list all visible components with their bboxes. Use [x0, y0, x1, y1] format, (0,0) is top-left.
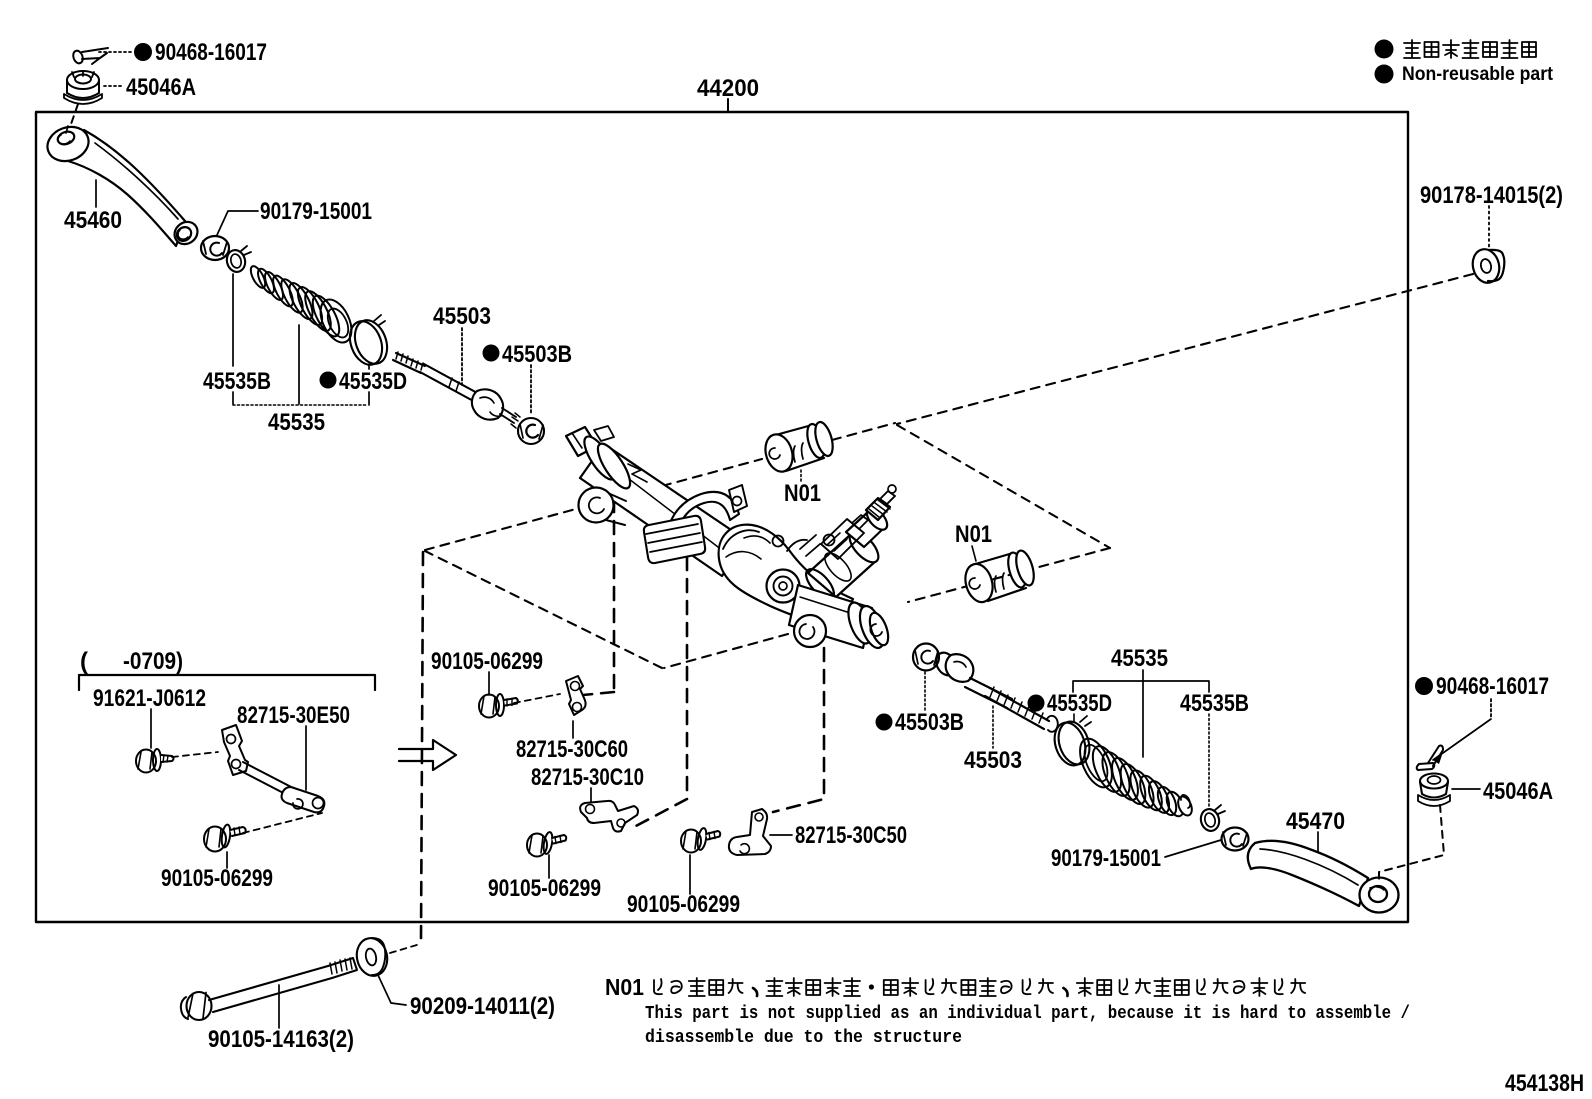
svg-text:90105-06299: 90105-06299 [488, 875, 601, 902]
svg-text:-0709): -0709) [123, 648, 183, 675]
svg-text:90178-14015(2): 90178-14015(2) [1420, 182, 1563, 209]
svg-text:90105-06299: 90105-06299 [431, 648, 543, 675]
svg-text:82715-30C10: 82715-30C10 [531, 764, 644, 791]
svg-text:45503: 45503 [964, 747, 1022, 774]
svg-text:90105-06299: 90105-06299 [161, 865, 273, 892]
svg-text:N01: N01 [605, 974, 644, 1000]
svg-text:45503B: 45503B [502, 341, 572, 368]
svg-text:45046A: 45046A [126, 74, 196, 101]
svg-text:90105-14163(2): 90105-14163(2) [208, 1026, 354, 1053]
svg-text:90468-16017: 90468-16017 [1436, 673, 1549, 700]
svg-text:45503B: 45503B [895, 709, 964, 736]
svg-text:82715-30E50: 82715-30E50 [237, 702, 350, 729]
svg-text:(: ( [80, 648, 88, 675]
svg-text:45535: 45535 [1111, 645, 1168, 672]
svg-text:N01: N01 [784, 480, 821, 507]
svg-text:90468-16017: 90468-16017 [155, 39, 267, 66]
svg-text:45535B: 45535B [203, 368, 271, 395]
svg-text:45535D: 45535D [339, 368, 407, 395]
svg-text:82715-30C50: 82715-30C50 [795, 822, 907, 849]
svg-text:91621-J0612: 91621-J0612 [93, 685, 206, 712]
svg-text:disassemble due to the structu: disassemble due to the structure [645, 1028, 962, 1048]
svg-text:45470: 45470 [1286, 808, 1345, 835]
svg-text:454138H: 454138H [1505, 1070, 1584, 1097]
svg-text:45535D: 45535D [1047, 690, 1112, 717]
svg-text:N01: N01 [955, 521, 992, 548]
svg-text:45535B: 45535B [1180, 690, 1249, 717]
svg-text:90179-15001: 90179-15001 [1051, 845, 1161, 872]
svg-text:82715-30C60: 82715-30C60 [516, 736, 628, 763]
svg-text:45503: 45503 [433, 303, 491, 330]
svg-text:Non-reusable part: Non-reusable part [1402, 64, 1554, 85]
svg-text:90105-06299: 90105-06299 [627, 891, 740, 918]
svg-text:44200: 44200 [697, 75, 759, 102]
svg-text:45460: 45460 [64, 207, 122, 234]
svg-text:This part is not supplied as a: This part is not supplied as an individu… [645, 1004, 1410, 1024]
svg-text:90179-15001: 90179-15001 [260, 198, 372, 225]
svg-text:90209-14011(2): 90209-14011(2) [410, 993, 555, 1020]
svg-text:45046A: 45046A [1483, 778, 1553, 805]
svg-text:45535: 45535 [268, 409, 325, 436]
